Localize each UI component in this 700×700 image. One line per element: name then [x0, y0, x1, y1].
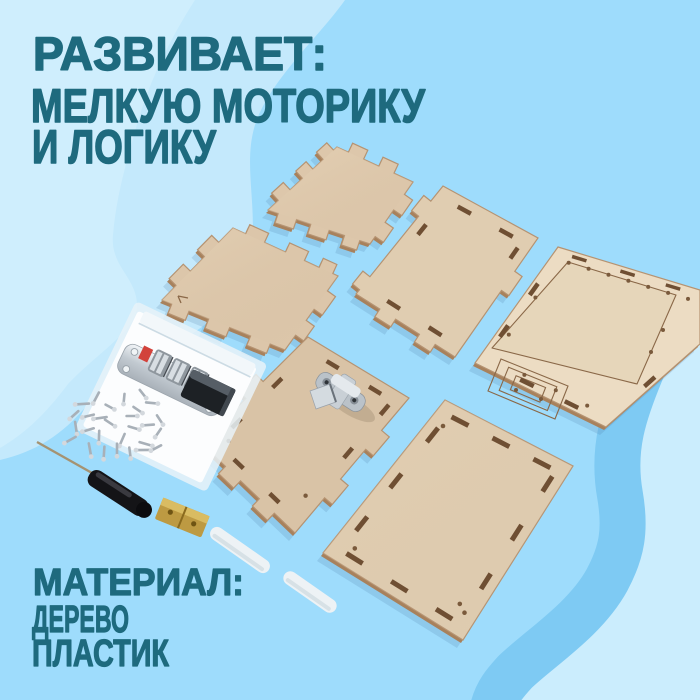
svg-text:И ЛОГИКУ: И ЛОГИКУ [32, 120, 217, 173]
svg-text:ПЛАСТИК: ПЛАСТИК [32, 633, 170, 675]
svg-text:МАТЕРИАЛ:: МАТЕРИАЛ: [33, 562, 244, 604]
svg-text:РАЗВИВАЕТ:: РАЗВИВАЕТ: [33, 27, 327, 80]
